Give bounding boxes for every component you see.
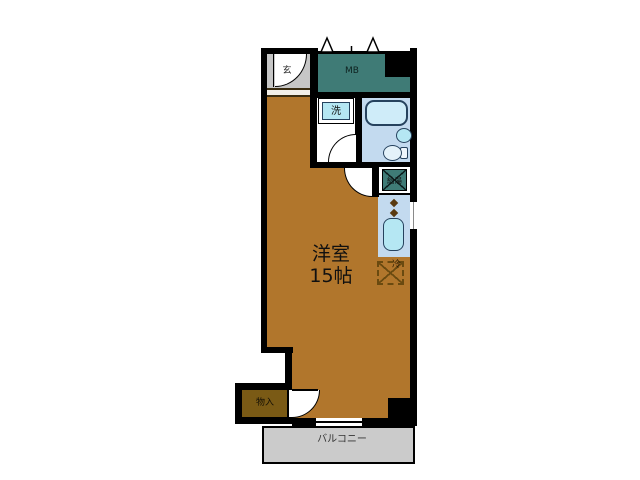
wall bbox=[410, 48, 417, 426]
toilet-bowl bbox=[383, 145, 402, 161]
meter-box-label: MB bbox=[340, 66, 364, 76]
vent-triangles-icon bbox=[315, 36, 385, 55]
wall bbox=[235, 417, 292, 424]
bathtub bbox=[365, 100, 408, 126]
wall-pillar bbox=[388, 398, 417, 426]
side-window-line bbox=[413, 202, 414, 229]
wall bbox=[261, 48, 267, 353]
wall bbox=[355, 92, 362, 168]
storage-door-leaf bbox=[292, 389, 318, 391]
main-room-size: 15帖 bbox=[299, 266, 363, 288]
water-heater: 給湯 bbox=[378, 166, 411, 194]
fridge-label: 冷 bbox=[392, 257, 401, 270]
water-heater-unit: 給湯 bbox=[382, 169, 407, 191]
washing-machine: 洗 bbox=[318, 98, 354, 124]
wall bbox=[310, 92, 317, 168]
entrance-door-leaf bbox=[273, 54, 274, 87]
entrance-step bbox=[267, 88, 310, 97]
washing-machine-pan: 洗 bbox=[322, 102, 350, 120]
entrance-label: 玄 bbox=[280, 66, 294, 76]
wall bbox=[385, 51, 410, 77]
main-room-name: 洋室 bbox=[299, 244, 363, 266]
storage-label: 物入 bbox=[245, 398, 285, 408]
side-window bbox=[410, 202, 417, 229]
wall bbox=[235, 383, 292, 390]
washer-label: 洗 bbox=[331, 106, 341, 117]
main-room-floor bbox=[310, 168, 372, 420]
water-heater-label: 給湯 bbox=[387, 176, 402, 185]
bath-sink bbox=[396, 128, 412, 143]
main-room-floor bbox=[267, 97, 310, 353]
balcony-window bbox=[315, 418, 363, 426]
floor-plan: 洗 給湯 冷 玄 MB 洋室 15帖 物入 バルコニー bbox=[0, 0, 640, 480]
wall bbox=[287, 390, 289, 417]
balcony-label: バルコニー bbox=[310, 434, 374, 446]
balcony-window-line bbox=[316, 421, 364, 423]
kitchen-sink bbox=[383, 218, 404, 251]
main-room-label: 洋室 15帖 bbox=[299, 244, 363, 288]
fridge-space: 冷 bbox=[377, 261, 404, 285]
